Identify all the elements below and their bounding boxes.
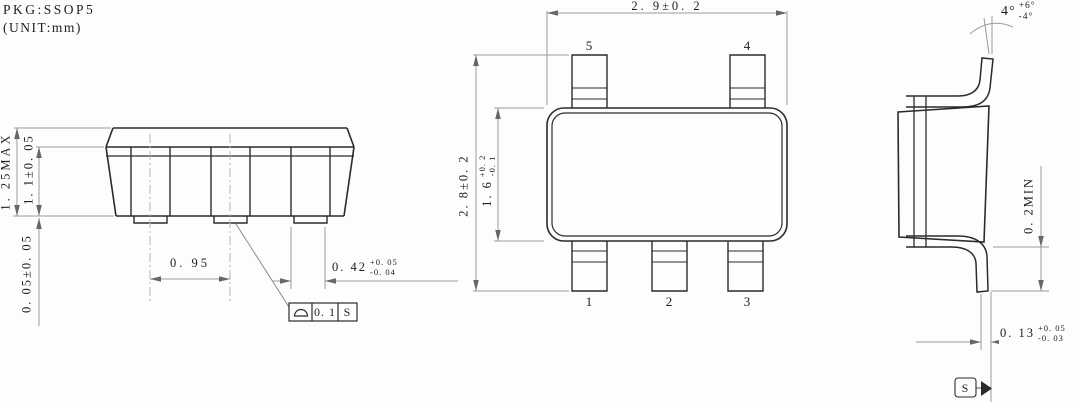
dim-standoff-label: 0. 05±0. 05 [20,219,35,329]
front-view-dimensions [13,128,458,326]
drawing-canvas: PKG:SSOP5 (UNIT:mm) 1. 25MAX 1. 1±0. 05 … [0,0,1080,402]
dim-body-height-label: 1. 1±0. 05 [22,118,37,222]
lead-width-value: 0. 42 [332,260,367,275]
pin3-label: 3 [737,294,757,310]
dim-width-label: 2. 9±0. 2 [600,0,734,14]
pin1-label: 1 [579,294,599,310]
lead-thickness-value: 0. 13 [1000,326,1035,341]
dim-total-height-label: 1. 25MAX [0,120,14,224]
lead-angle-tolerance: +6° -4° [1019,1,1036,23]
body-width-value: 1. 6 [481,180,496,207]
dim-pitch-label: 0. 95 [160,256,220,271]
datum-s-label: S [955,381,976,396]
side-lead-inner-edges [914,96,926,247]
dim-lead-width-label: 0. 42 +0. 05 -0. 04 [332,258,398,278]
side-body [898,106,989,242]
plan-body-inner [552,113,782,236]
plan-pin1 [572,241,607,291]
fcf-tolerance-label: 0. 1 [312,305,338,320]
pin2-label: 2 [659,294,679,310]
plan-pin5 [572,55,607,108]
lead-thickness-tolerance: +0. 05 -0. 03 [1038,324,1066,344]
dim-lead-thickness-label: 0. 13 +0. 05 -0. 03 [1000,324,1066,344]
package-outline-drawing [0,0,1080,402]
side-view [898,58,993,292]
package-name-label: PKG:SSOP5 [3,2,95,18]
dim-overall-label: 2. 8±0. 2 [457,134,472,238]
datum-triangle [981,381,992,396]
lead-angle-value: 4° [1001,4,1016,20]
top-view [547,55,787,291]
fcf-datum-label: S [338,305,357,320]
unit-label: (UNIT:mm) [3,20,82,36]
plan-pin4 [730,55,765,108]
lead-angle-tol-minus: -4° [1019,12,1036,23]
seating-plane-icon [295,310,308,317]
plan-body-outer [547,108,787,241]
lead-width-tol-minus: -0. 04 [370,268,398,278]
dim-lead-angle-label: 4° +6° -4° [1001,1,1036,23]
side-lead-up [906,58,993,107]
body-width-tolerance: +0. 2 -0. 1 [478,155,498,178]
dim-tip-length-label: 0. 2MIN [1022,164,1037,248]
side-lead-down [906,236,988,292]
lead-angle-tol-plus: +6° [1019,1,1036,12]
plan-pin3 [728,241,763,291]
pin5-label: 5 [579,38,599,54]
plan-pin2 [652,241,687,291]
body-width-tol-minus: -0. 1 [488,155,498,178]
pin4-label: 4 [737,38,757,54]
lead-width-tolerance: +0. 05 -0. 04 [370,258,398,278]
dim-body-width-label: 1. 6 +0. 2 -0. 1 [478,144,498,218]
lead-thickness-tol-minus: -0. 03 [1038,334,1066,344]
